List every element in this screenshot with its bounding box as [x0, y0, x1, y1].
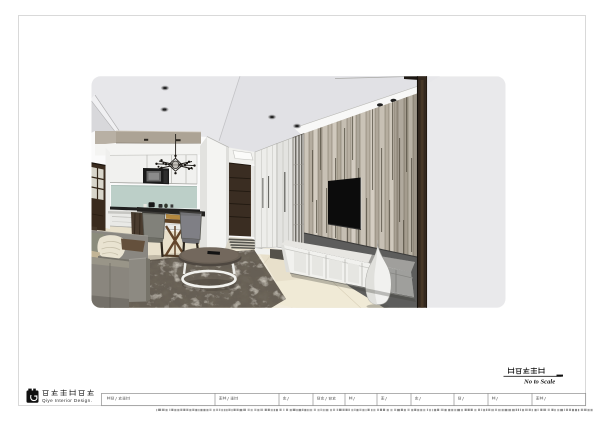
- svg-text:Qiye Interior Design.: Qiye Interior Design.: [42, 398, 92, 403]
- svg-text:No to Scale: No to Scale: [523, 378, 555, 385]
